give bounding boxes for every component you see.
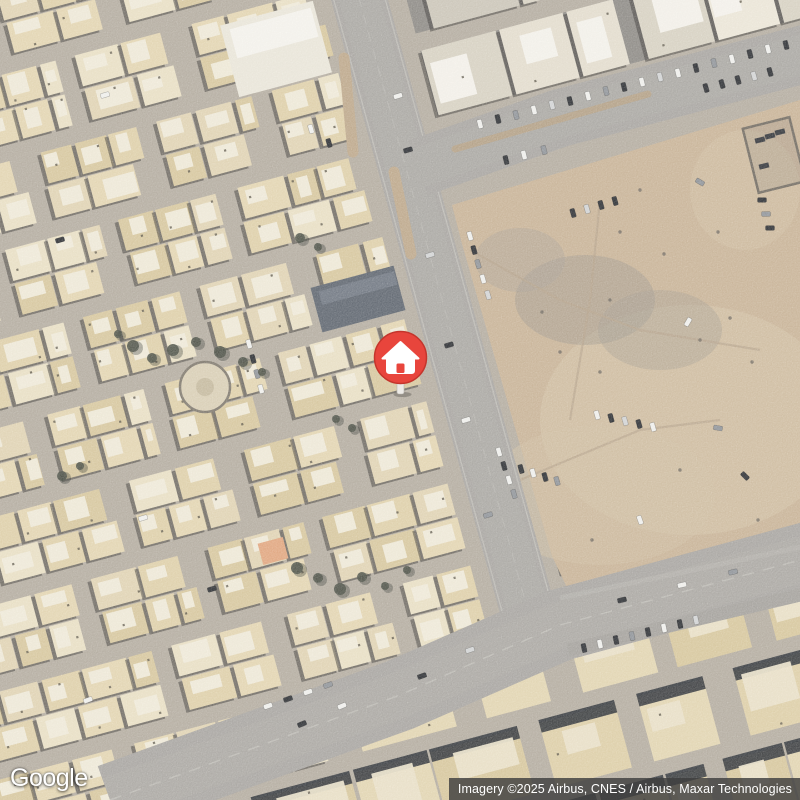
map-attribution: Imagery ©2025 Airbus, CNES / Airbus, Max… <box>449 778 800 800</box>
noise-overlay <box>0 0 800 800</box>
google-logo[interactable]: Google <box>10 764 88 793</box>
satellite-imagery <box>0 0 800 800</box>
map-canvas[interactable]: Google Imagery ©2025 Airbus, CNES / Airb… <box>0 0 800 800</box>
